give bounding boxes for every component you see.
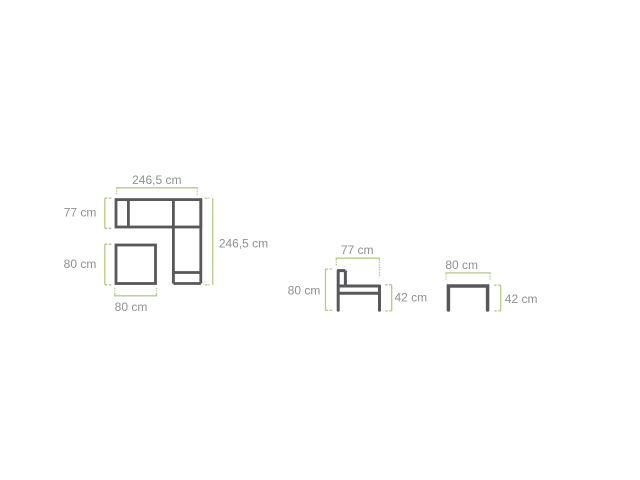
- svg-text:246,5 cm: 246,5 cm: [132, 173, 181, 187]
- svg-text:42 cm: 42 cm: [395, 291, 428, 305]
- svg-text:77 cm: 77 cm: [64, 206, 97, 220]
- svg-text:80 cm: 80 cm: [115, 300, 148, 314]
- svg-text:80 cm: 80 cm: [64, 257, 97, 271]
- svg-text:42 cm: 42 cm: [505, 292, 538, 306]
- svg-text:80 cm: 80 cm: [288, 283, 321, 297]
- svg-text:80 cm: 80 cm: [445, 258, 478, 272]
- svg-text:77 cm: 77 cm: [341, 243, 374, 257]
- svg-text:246,5 cm: 246,5 cm: [219, 237, 268, 251]
